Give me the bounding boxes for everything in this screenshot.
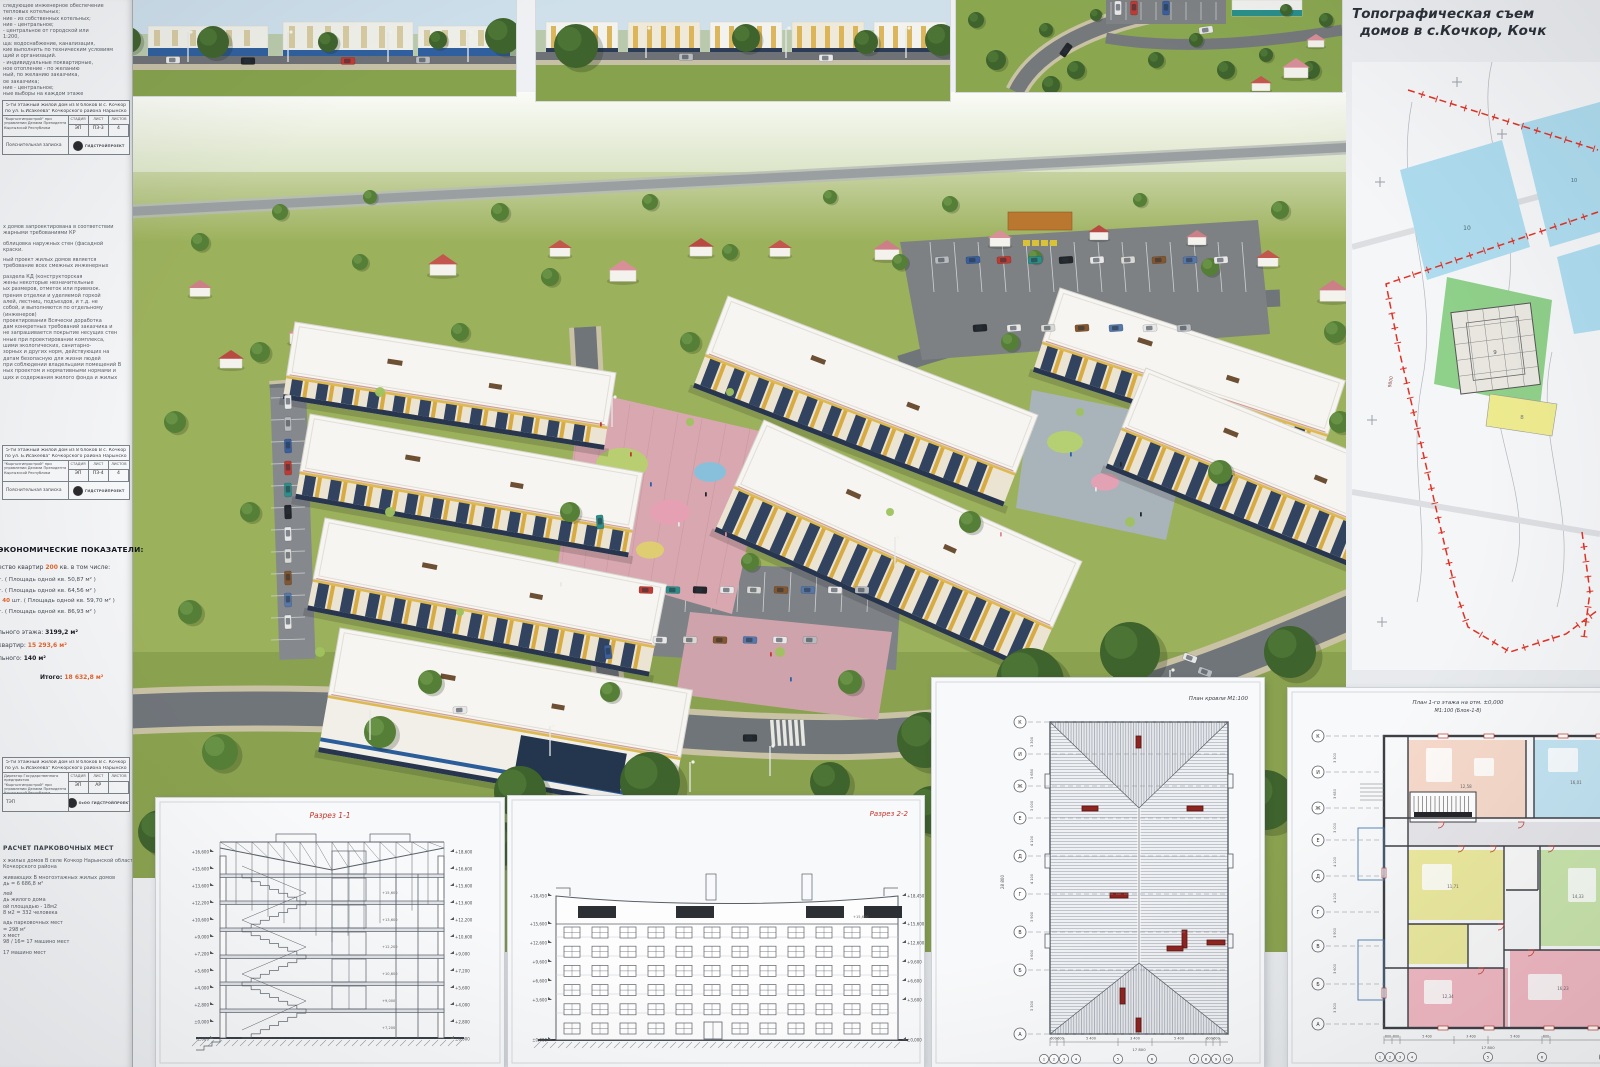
svg-text:+10,600: +10,600 [382,972,398,976]
svg-text:28 800: 28 800 [1000,875,1005,889]
svg-text:+12,600: +12,600 [530,941,548,946]
board-title-line1: Топографическая съем [1352,6,1600,23]
left-text-panel: следующее инженерное обеспечениетепловых… [0,0,133,1067]
seal-stamp-icon [73,141,83,151]
svg-text:+7,200: +7,200 [455,969,470,974]
svg-text:План кровли М1:100: План кровли М1:100 [1189,696,1249,702]
svg-text:+18,450: +18,450 [907,894,924,899]
sheet-section-2-2: Разрез 2-2+18,450+15,600+12,600+9,600+6,… [508,796,924,1067]
svg-text:17 800: 17 800 [1481,1045,1495,1050]
sheet-floor-plan: План 1-го этажа на отм. ±0,000М1:100 (Бл… [1288,688,1600,1067]
svg-text:600: 600 [1385,1035,1391,1039]
svg-text:+15,600: +15,600 [382,891,398,895]
render-thumb-street-1 [118,0,516,96]
economics-heading: ЭКОНОМИЧЕСКИЕ ПОКАЗАТЕЛИ: [0,545,132,554]
svg-text:+10,600: +10,600 [455,935,473,940]
svg-text:+12,200: +12,200 [382,945,398,949]
svg-text:Г: Г [1019,892,1022,898]
svg-text:±0,000: ±0,000 [532,1038,547,1043]
svg-text:3 400: 3 400 [1466,1035,1475,1039]
svg-text:+9,000: +9,000 [455,952,470,957]
svg-text:3 000: 3 000 [1030,800,1034,811]
stamp-org: "Кыргызгипрострой" при управлении Делами… [3,116,69,136]
svg-text:17 800: 17 800 [1132,1047,1146,1052]
stamp-org: "Кыргызгипрострой" при управлении Делами… [3,461,69,481]
board-title-line2: домов в с.Кочкор, Кочк [1352,23,1600,40]
svg-text:16,23: 16,23 [1557,986,1569,991]
balconies [1358,784,1384,1000]
title-stamp-2: 5-ти этажный жилой дом из 8 блоков В с. … [2,445,130,500]
svg-text:+15,600: +15,600 [907,922,924,927]
parking-calculation: РАСЧЕТ ПАРКОВОЧНЫХ МЕСТ х жилых домов В … [0,845,132,956]
svg-text:+5,600: +5,600 [194,969,209,974]
svg-text:-1,000: -1,000 [196,1037,209,1042]
svg-text:3 600: 3 600 [1333,964,1337,974]
svg-text:М1:100 (Блок-1-8): М1:100 (Блок-1-8) [1435,708,1482,714]
svg-text:600: 600 [1206,1037,1212,1041]
svg-text:Разрез 1-1: Разрез 1-1 [309,811,350,820]
topographic-site-plan: 1010989800 [1352,62,1600,670]
svg-text:3 650: 3 650 [1030,768,1034,779]
svg-text:+3,600: +3,600 [532,998,547,1003]
svg-text:±0,000: ±0,000 [907,1038,922,1043]
svg-text:+9,000: +9,000 [382,999,396,1003]
svg-text:3 300: 3 300 [1333,1003,1337,1013]
svg-text:+12,600: +12,600 [907,941,924,946]
sheet-roof-plan: План кровли М1:100КИЖЕДГВБА3 3003 6503 0… [932,678,1264,1067]
svg-text:Д: Д [1316,874,1320,880]
apartment-count-line: ество квартир 200 кв. в том числе: [0,564,132,571]
parking-lines: х жилых домов В селе Кочкор Нарынской об… [0,858,132,956]
svg-text:+4,000: +4,000 [455,1003,470,1008]
svg-text:Д: Д [1018,854,1022,860]
svg-text:10: 10 [1571,178,1577,184]
svg-text:9: 9 [1493,350,1497,356]
svg-text:3 300: 3 300 [1030,1000,1034,1011]
svg-text:Б: Б [1316,982,1319,988]
bottom-dims: 6006005 4003 4005 40060017 8001234567 [1375,1035,1600,1062]
svg-text:Е: Е [1316,838,1319,844]
svg-text:3 400: 3 400 [1130,1037,1140,1041]
svg-text:4 100: 4 100 [1030,873,1034,884]
svg-text:4 100: 4 100 [1030,835,1034,846]
svg-text:600: 600 [1393,1035,1399,1039]
svg-text:План 1-го этажа на отм. ±0,000: План 1-го этажа на отм. ±0,000 [1413,700,1505,706]
svg-text:И: И [1316,770,1320,776]
economics-totals: льного этажа: 3199,2 м²квартир: 15 293,6… [0,629,132,681]
board-title: Топографическая съем домов в с.Кочкор, К… [1352,6,1600,40]
svg-text:+9,600: +9,600 [532,960,547,965]
svg-text:3 300: 3 300 [1333,753,1337,763]
render-thumb-aerial-3 [956,0,1342,92]
svg-text:4 100: 4 100 [1333,893,1337,903]
stamp-project: 5-ти этажный жилой дом из 8 блоков В с. … [3,758,129,773]
svg-text:+13,600: +13,600 [192,884,210,889]
svg-text:+15,600: +15,600 [455,884,473,889]
svg-text:600: 600 [1543,1035,1549,1039]
seal-stamp-icon [73,486,83,496]
svg-text:+9,600: +9,600 [907,960,922,965]
svg-text:600: 600 [1050,1037,1056,1041]
svg-text:3 300: 3 300 [1030,736,1034,747]
svg-text:+18,450: +18,450 [530,894,548,899]
svg-text:+13,600: +13,600 [382,918,398,922]
svg-text:Б: Б [1018,968,1021,974]
svg-text:+2,800: +2,800 [194,1003,209,1008]
svg-text:К: К [1316,734,1320,740]
building-footprint [1451,303,1540,394]
svg-text:5 400: 5 400 [1086,1037,1096,1041]
svg-text:Разрез 2-2: Разрез 2-2 [870,810,909,818]
svg-text:5 400: 5 400 [1174,1037,1184,1041]
svg-text:600: 600 [1057,1037,1063,1041]
svg-text:+2,800: +2,800 [455,1020,470,1025]
render-thumb-street-2 [536,0,950,101]
bottom-dims: 6006005 4003 4005 40060060017 8001234567… [1039,1037,1232,1064]
svg-text:Г: Г [1317,910,1320,916]
svg-text:Ж: Ж [1017,784,1023,790]
title-stamp-3: 5-ти этажный жилой дом из 8 блоков В с. … [2,757,130,812]
svg-text:10: 10 [1463,225,1471,232]
svg-text:±0,000: ±0,000 [455,1037,470,1042]
svg-text:+5,600: +5,600 [455,986,470,991]
economic-indicators: ЭКОНОМИЧЕСКИЕ ПОКАЗАТЕЛИ: ество квартир … [0,545,132,681]
svg-text:+6,600: +6,600 [532,979,547,984]
stamp-project: 5-ти этажный жилой дом из 8 блоков В с. … [3,446,129,461]
svg-text:+15,600: +15,600 [530,922,548,927]
svg-text:5 400: 5 400 [1422,1035,1431,1039]
green-parcel [1434,277,1552,407]
svg-text:+16,600: +16,600 [192,850,210,855]
svg-text:+10,600: +10,600 [192,918,210,923]
svg-text:+12,200: +12,200 [192,901,210,906]
sheet-section-1-1: Разрез 1-1+16,600+15,600+13,600+12,200+1… [156,798,504,1067]
svg-text:3 900: 3 900 [1333,928,1337,938]
apartment-type-lines: т. ( Площадь одной кв. 50,87 м² )т. ( Пл… [0,577,132,615]
svg-text:+6,600: +6,600 [907,979,922,984]
svg-text:К: К [1018,720,1022,726]
svg-text:+15,600: +15,600 [192,867,210,872]
svg-text:12,58: 12,58 [1460,784,1472,789]
svg-text:+3,600: +3,600 [907,998,922,1003]
svg-text:В: В [1316,944,1319,950]
svg-text:3 000: 3 000 [1333,823,1337,833]
svg-text:И: И [1018,752,1022,758]
stamp-project: 5-ти этажный жилой дом из 8 блоков В с. … [3,101,129,116]
svg-text:+12,200: +12,200 [455,918,473,923]
svg-text:3 600: 3 600 [1030,949,1034,960]
explanatory-note-text: х домов запроектирована в соответствиижа… [0,224,132,381]
svg-text:+15,600: +15,600 [853,915,869,919]
svg-text:16,01: 16,01 [1570,780,1582,785]
svg-text:Е: Е [1018,816,1021,822]
svg-text:10: 10 [1226,1057,1231,1062]
svg-text:+7,200: +7,200 [382,1026,396,1030]
svg-text:3 900: 3 900 [1030,911,1034,922]
svg-text:4 100: 4 100 [1333,857,1337,867]
stamp-org: Директор Государственного предприятия "К… [3,773,69,793]
svg-text:3 650: 3 650 [1333,789,1337,799]
svg-text:11,71: 11,71 [1447,884,1459,889]
svg-text:12,34: 12,34 [1442,994,1454,999]
svg-text:5 400: 5 400 [1510,1035,1519,1039]
svg-text:8: 8 [1520,415,1524,421]
svg-text:14,33: 14,33 [1572,894,1584,899]
svg-text:+4,000: +4,000 [194,986,209,991]
engineering-note: следующее инженерное обеспечениетепловых… [0,3,132,97]
svg-text:+9,000: +9,000 [194,935,209,940]
svg-text:600: 600 [1213,1037,1219,1041]
svg-text:+7,200: +7,200 [194,952,209,957]
svg-text:+16,600: +16,600 [455,867,473,872]
svg-text:+13,600: +13,600 [455,901,473,906]
svg-text:В: В [1018,930,1021,936]
svg-text:Ж: Ж [1315,806,1321,812]
seal-stamp-icon [69,798,77,808]
svg-text:+18,600: +18,600 [455,850,473,855]
parking-heading: РАСЧЕТ ПАРКОВОЧНЫХ МЕСТ [3,845,132,852]
title-stamp-1: 5-ти этажный жилой дом из 8 блоков В с. … [2,100,130,155]
presentation-board: Топографическая съем домов в с.Кочкор, К… [0,0,1600,1067]
svg-text:±0,000: ±0,000 [194,1020,209,1025]
